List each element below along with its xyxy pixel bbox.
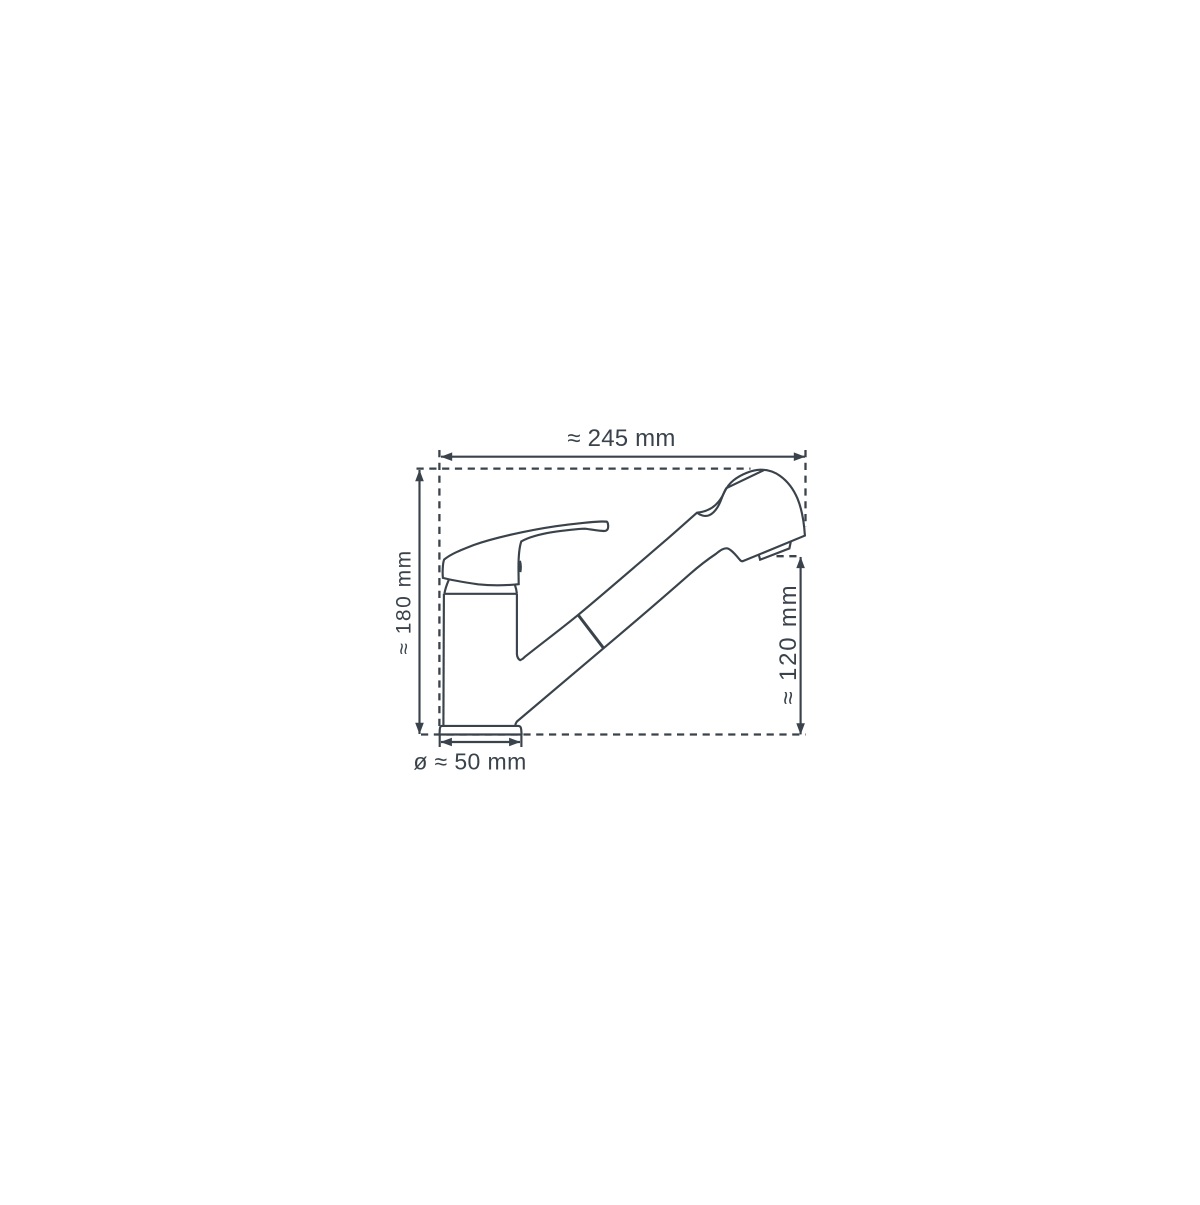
svg-text:≈ 120 mm: ≈ 120 mm: [775, 584, 802, 705]
svg-text:≈ 180 mm: ≈ 180 mm: [393, 549, 416, 654]
svg-text:ø ≈ 50 mm: ø ≈ 50 mm: [413, 749, 526, 775]
svg-text:≈ 245 mm: ≈ 245 mm: [567, 425, 675, 452]
